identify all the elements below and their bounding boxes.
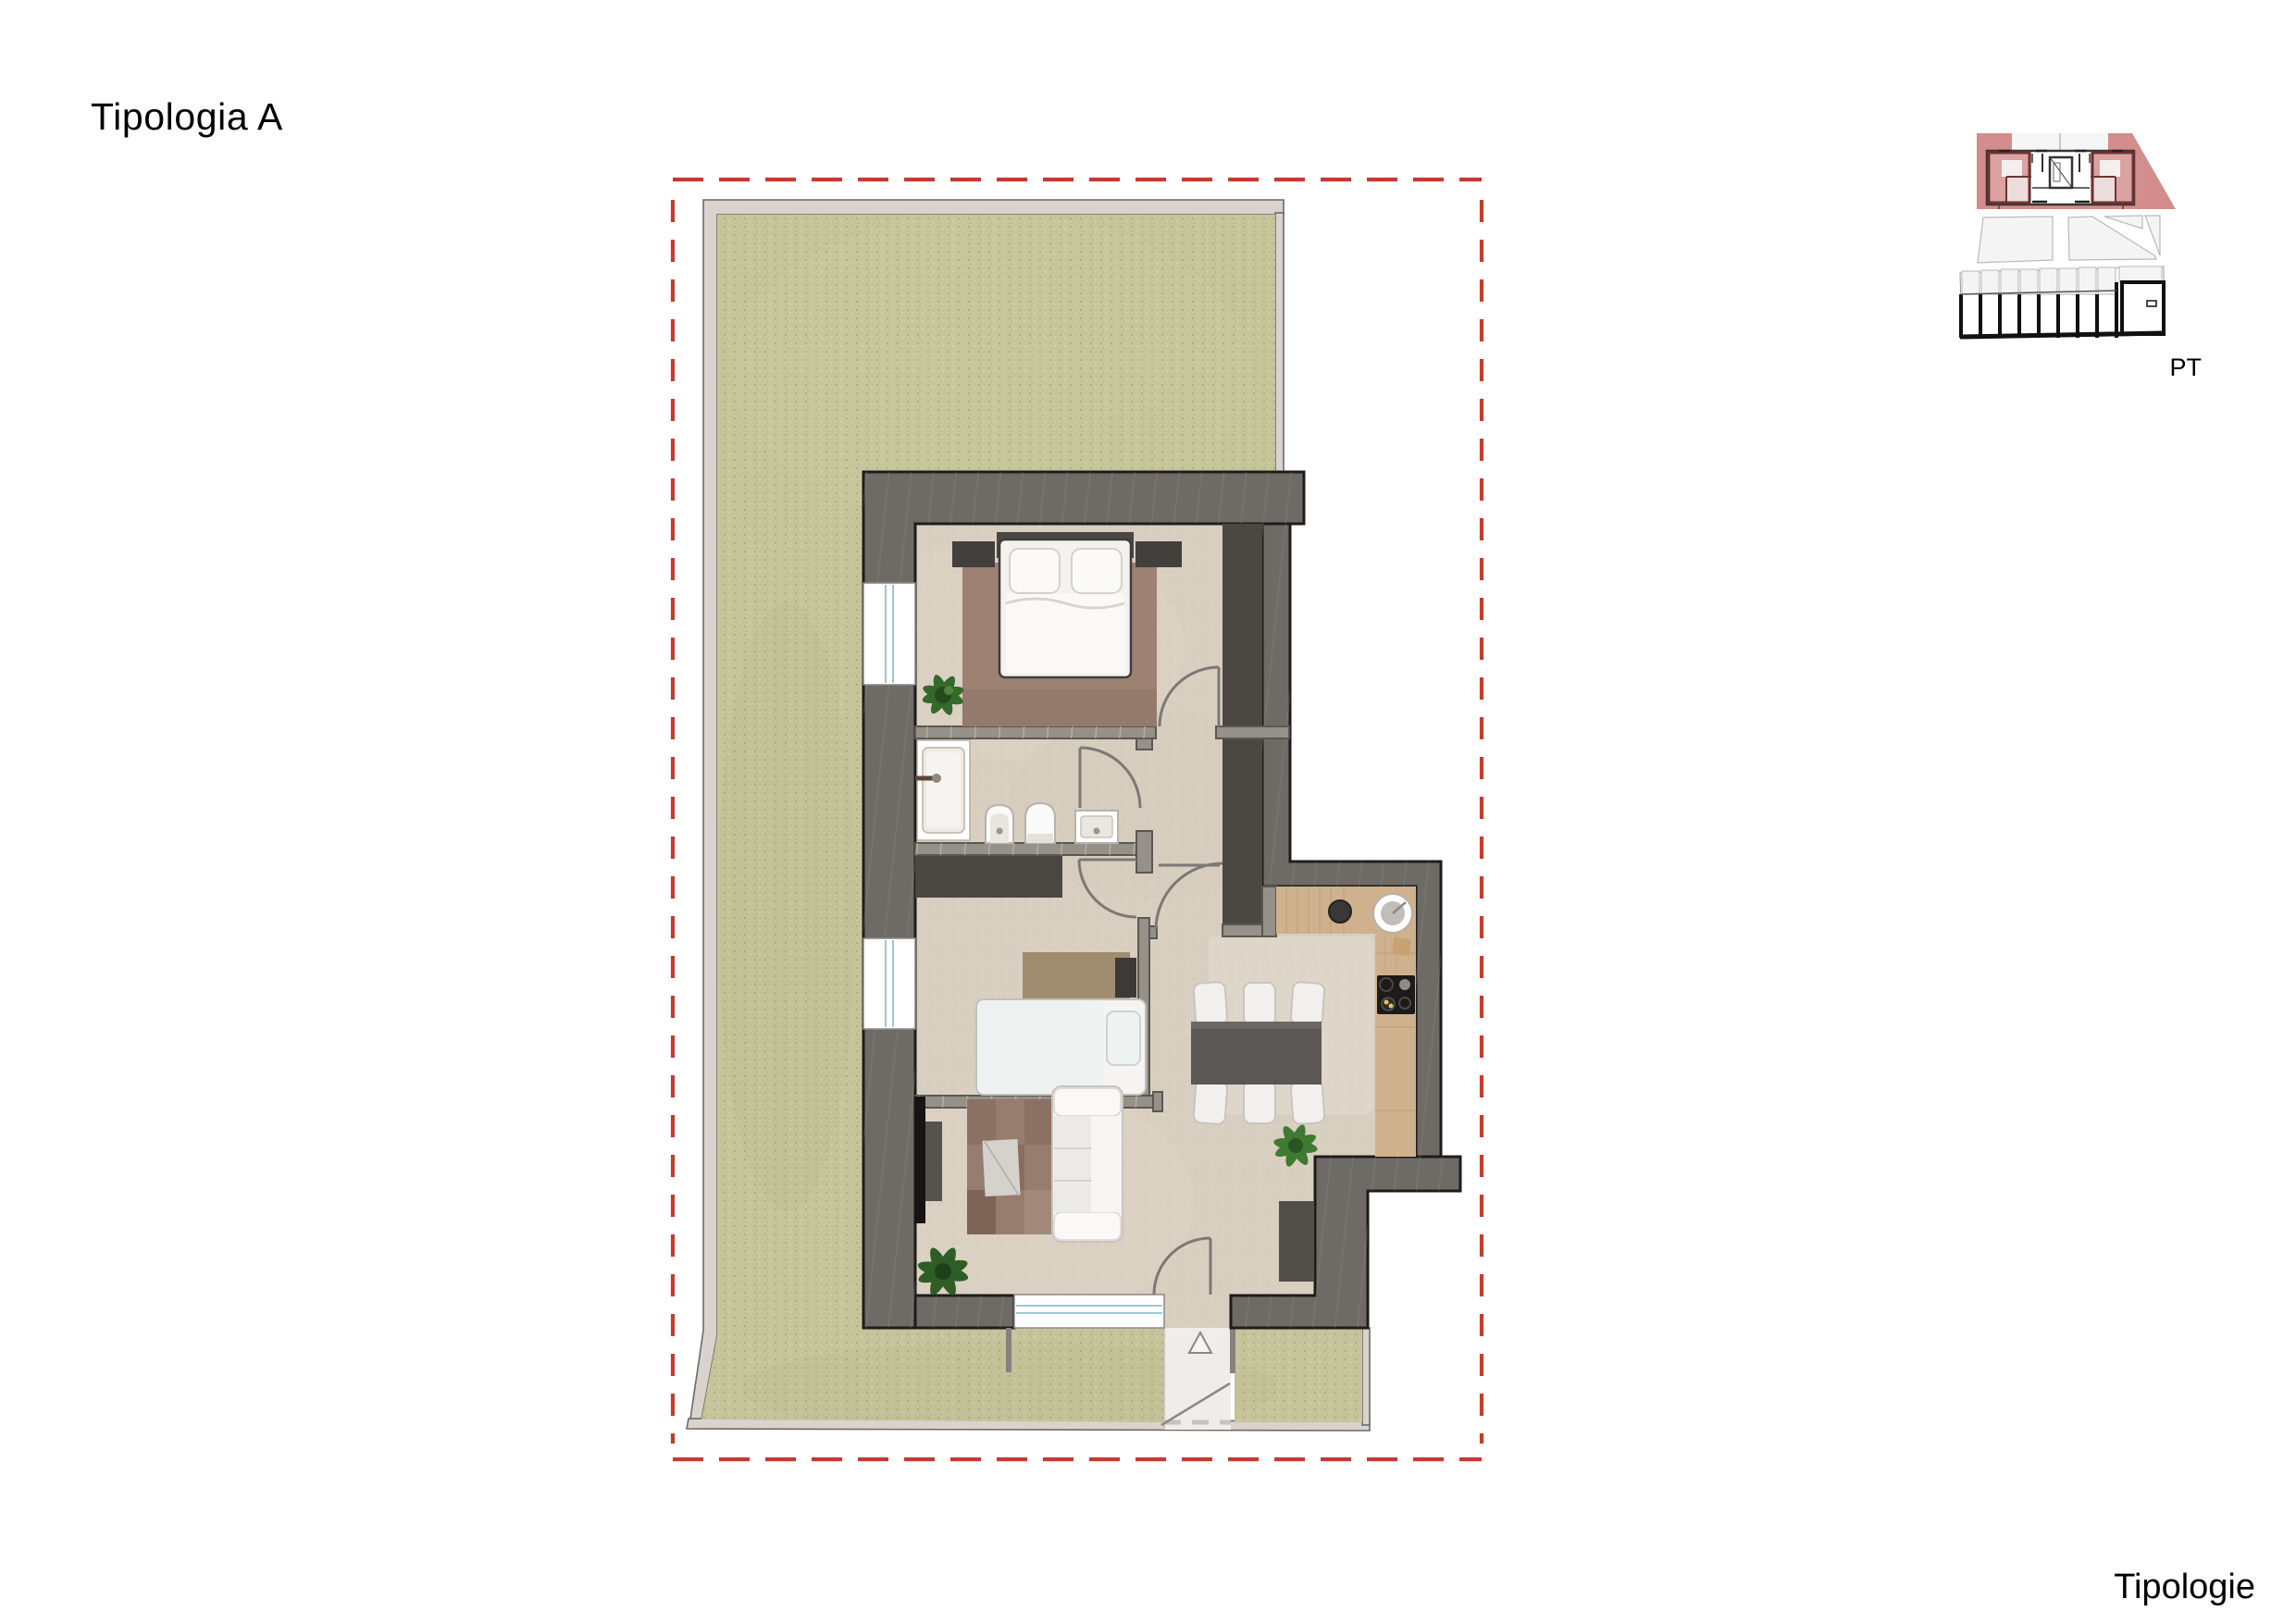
svg-text:Tipologie: Tipologie	[2114, 1568, 2255, 1606]
svg-text:Tipologia A: Tipologia A	[91, 95, 283, 138]
svg-text:PT: PT	[2169, 353, 2202, 381]
